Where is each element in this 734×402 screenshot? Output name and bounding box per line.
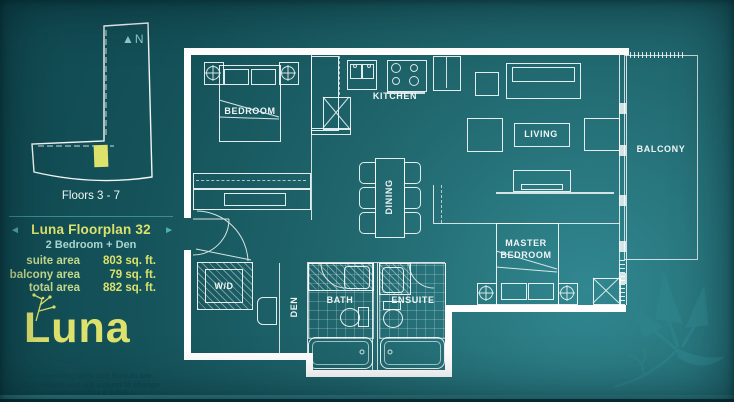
armchair	[467, 118, 503, 152]
floorplan-title: Luna Floorplan 32	[0, 222, 182, 237]
interior-wall	[279, 263, 280, 353]
bath-sink	[344, 266, 370, 289]
trumpet-flower-decoration	[612, 265, 734, 399]
sink-basin	[362, 64, 374, 79]
room-label-wd: W/D	[214, 281, 233, 291]
fridge-door-line	[446, 57, 447, 88]
dining-chair	[404, 187, 421, 209]
nightstand	[558, 283, 578, 305]
media-wall-line	[496, 192, 614, 194]
area-label: balcony area	[0, 269, 80, 283]
sink-basin	[350, 64, 362, 79]
area-row-balcony: balcony area 79 sq. ft.	[0, 269, 182, 283]
balcony-outline	[624, 55, 698, 260]
wall-segment	[184, 250, 191, 360]
area-label: suite area	[0, 255, 80, 269]
interior-wall	[372, 263, 373, 370]
fridge	[433, 56, 461, 91]
room-label-master-line2: BEDROOM	[486, 249, 566, 261]
interior-wall	[377, 263, 378, 370]
logo-wordmark: Luna	[24, 307, 131, 350]
wall-segment	[445, 305, 452, 377]
floorplan-subtitle: 2 Bedroom + Den	[0, 239, 182, 251]
area-value: 79 sq. ft.	[80, 269, 156, 283]
room-label-den: DEN	[289, 297, 299, 318]
bathtub	[308, 337, 373, 369]
bed-pillow	[528, 283, 554, 300]
highlighted-unit	[94, 145, 109, 167]
dining-chair	[359, 162, 376, 184]
wall-segment	[184, 353, 313, 360]
dining-chair	[359, 187, 376, 209]
floors-label: Floors 3 - 7	[0, 190, 182, 202]
nightstand	[477, 283, 497, 305]
counter-return	[311, 128, 351, 135]
room-label-bedroom: BEDROOM	[224, 106, 275, 116]
wall-segment	[445, 305, 626, 312]
corner-cabinet	[323, 97, 351, 130]
floorplan-page: ▲N Floors 3 - 7 ◄ Luna Floorplan 32 ► 2 …	[0, 0, 734, 402]
interior-wall	[433, 185, 434, 223]
tv-console-shelf	[521, 184, 563, 190]
luna-logo: Luna	[24, 297, 174, 359]
next-floorplan-button[interactable]: ►	[164, 225, 174, 236]
dining-chair	[404, 212, 421, 234]
side-table	[475, 72, 499, 96]
toilet	[340, 308, 360, 327]
dining-chair	[359, 212, 376, 234]
area-value: 803 sq. ft.	[80, 255, 156, 269]
room-label-ensuite: ENSUITE	[391, 295, 434, 305]
closet-shelf	[224, 193, 286, 206]
bed-pillow	[501, 283, 527, 300]
sofa-back	[512, 67, 575, 82]
disclaimer-text: Dimensions, sizes and layouts are approx…	[12, 372, 168, 398]
toilet	[383, 309, 403, 328]
ensuite-sink	[382, 267, 404, 293]
counter-overhang	[339, 56, 340, 95]
bed-pillow	[251, 69, 276, 85]
interior-wall	[445, 263, 446, 305]
divider-line	[9, 216, 173, 217]
dining-chair	[404, 162, 421, 184]
closet-rod	[441, 185, 442, 223]
nightstand	[279, 62, 299, 85]
area-row-suite: suite area 803 sq. ft.	[0, 255, 182, 269]
room-label-living: LIVING	[524, 129, 558, 139]
bed-pillow	[224, 69, 249, 85]
bathtub	[380, 337, 445, 369]
closet-rod	[196, 180, 306, 181]
wall-segment	[184, 48, 191, 218]
area-table: suite area 803 sq. ft. balcony area 79 s…	[0, 255, 182, 296]
wall-segment	[306, 370, 452, 377]
armchair	[584, 118, 620, 151]
room-label-kitchen: KITCHEN	[373, 91, 417, 101]
room-label-dining: DINING	[384, 179, 394, 214]
balcony-railing-hatch	[630, 52, 686, 58]
room-label-bath: BATH	[327, 295, 354, 305]
nightstand	[204, 62, 224, 85]
area-value: 882 sq. ft.	[80, 282, 156, 296]
room-label-balcony: BALCONY	[637, 144, 686, 154]
den-chair	[257, 297, 277, 325]
room-label-master-bedroom: MASTER BEDROOM	[486, 237, 566, 261]
wall-segment	[184, 48, 629, 55]
room-label-master-line1: MASTER	[486, 237, 566, 249]
closet	[193, 173, 311, 189]
sidebar: ▲N Floors 3 - 7 ◄ Luna Floorplan 32 ► 2 …	[0, 0, 182, 402]
site-plan-keymap	[14, 14, 166, 186]
stove	[387, 60, 427, 92]
